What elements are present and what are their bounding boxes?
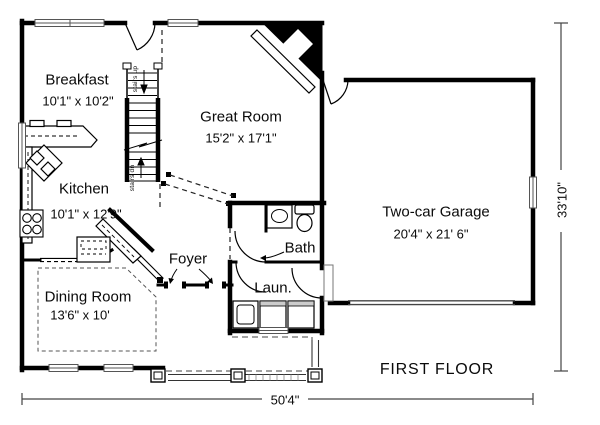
plan-title: FIRST FLOOR (380, 362, 494, 378)
room-label-bath: Bath (285, 241, 316, 256)
room-dims-garage: 20'4" x 21' 6" (394, 228, 469, 241)
toilet-bowl (297, 215, 312, 232)
door-laundry-garage (292, 265, 333, 301)
bath-fixtures (267, 205, 314, 232)
garage-walls (330, 80, 533, 303)
laundry-fixtures (233, 301, 314, 328)
room-label-great-room: Great Room (200, 110, 282, 125)
room-dims-kitchen: 10'1" x 12'9" (50, 208, 121, 221)
dimension-depth: 33'10" (556, 182, 569, 218)
opening-jambs (127, 172, 236, 289)
toilet-tank (295, 205, 314, 214)
porch (151, 337, 322, 382)
dimension-width: 50'4" (271, 394, 300, 407)
room-dims-dining-room: 13'6" x 10' (50, 309, 109, 322)
porch-railing (249, 375, 298, 381)
room-label-breakfast: Breakfast (45, 73, 108, 88)
room-dims-great-room: 15'2" x 17'1" (205, 132, 276, 145)
room-dims-breakfast: 10'1" x 10'2" (42, 95, 113, 108)
kitchen-island (77, 237, 110, 262)
room-label-laundry: Laun. (254, 281, 292, 296)
floor-plan: Breakfast 10'1" x 10'2" Great Room 15'2"… (0, 0, 600, 425)
stair-arrows (138, 70, 147, 178)
room-label-dining-room: Dining Room (45, 290, 132, 305)
bath-sink (272, 210, 288, 223)
room-label-garage: Two-car Garage (382, 205, 490, 220)
room-label-foyer: Foyer (169, 252, 207, 267)
door-rear-entry (125, 23, 155, 50)
bath-leader (260, 252, 284, 261)
stairs-dn-label: stairs dn (130, 165, 137, 191)
door-garage-entry (323, 80, 348, 104)
stove (20, 210, 43, 237)
fireplace (251, 23, 322, 93)
stairs-up-label: stairs up (133, 66, 140, 92)
room-label-kitchen: Kitchen (59, 182, 109, 197)
garage-door (348, 301, 515, 305)
